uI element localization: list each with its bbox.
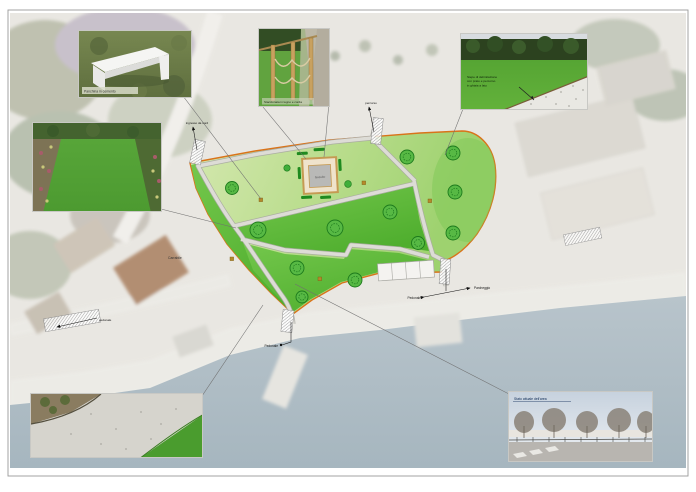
drawing-sheet: Gazebo	[0, 0, 696, 492]
label-pedestrian-left: pedonale	[99, 318, 112, 322]
street-caption: Stato attuale dell'area	[514, 397, 547, 401]
photo-street: Stato attuale dell'area	[508, 391, 653, 462]
structure-label: Gazebo	[315, 175, 326, 180]
label-driveway: Carrabile	[168, 256, 182, 260]
photo-lawn	[32, 122, 162, 212]
label-pedestrian-right: Pedonale	[408, 296, 422, 300]
svg-text:in ghiaia a lato: in ghiaia a lato	[467, 83, 487, 87]
fence-caption: Staccionata in legno e corda	[264, 100, 302, 104]
parking-stalls	[377, 260, 434, 281]
label-entrance-north: ingresso da nord	[186, 121, 209, 125]
photo-gravel	[30, 393, 203, 458]
label-path-top: percorso	[365, 101, 377, 105]
photo-hedge: Siepe di delimitazione con prato e perco…	[460, 33, 588, 110]
arrow-dot	[280, 344, 282, 346]
bench-caption: Panchina in cemento	[84, 90, 116, 94]
label-parking: Parcheggio	[474, 286, 490, 290]
photo-fence: Staccionata in legno e corda	[258, 28, 330, 107]
photo-bench: Panchina in cemento	[78, 30, 192, 98]
label-pedestrian-south: Pedonale	[265, 344, 279, 348]
